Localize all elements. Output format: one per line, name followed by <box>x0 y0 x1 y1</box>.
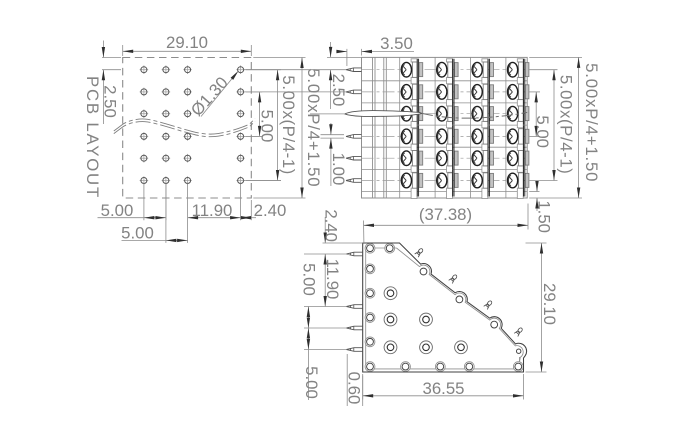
svg-text:1.00: 1.00 <box>329 153 348 186</box>
svg-text:2.50: 2.50 <box>100 85 119 118</box>
svg-text:0.60: 0.60 <box>345 372 364 405</box>
svg-text:5.00x(P/4-1): 5.00x(P/4-1) <box>279 75 298 175</box>
svg-text:5.00xP/4+1.50: 5.00xP/4+1.50 <box>304 68 323 187</box>
svg-text:PCB LAYOUT: PCB LAYOUT <box>83 76 102 199</box>
svg-text:5.00: 5.00 <box>257 110 276 143</box>
svg-text:(37.38): (37.38) <box>419 205 472 224</box>
svg-text:5.00: 5.00 <box>300 263 319 296</box>
svg-text:36.55: 36.55 <box>423 379 465 398</box>
svg-text:5.00: 5.00 <box>101 201 134 220</box>
svg-text:5.00x(P/4-1): 5.00x(P/4-1) <box>556 75 575 175</box>
svg-text:29.10: 29.10 <box>166 33 208 52</box>
svg-text:2.40: 2.40 <box>321 209 340 242</box>
svg-text:11.90: 11.90 <box>323 259 342 300</box>
svg-text:2.40: 2.40 <box>254 201 287 220</box>
svg-text:5.00: 5.00 <box>302 366 321 399</box>
svg-text:11.90: 11.90 <box>192 201 233 220</box>
svg-text:1.50: 1.50 <box>535 200 554 233</box>
svg-text:5.00xP/4+1.50: 5.00xP/4+1.50 <box>582 63 601 182</box>
svg-text:29.10: 29.10 <box>540 283 559 325</box>
svg-text:Ø1.30: Ø1.30 <box>187 73 232 120</box>
svg-text:2.50: 2.50 <box>329 74 348 107</box>
svg-text:3.50: 3.50 <box>380 34 413 53</box>
svg-text:5.00: 5.00 <box>121 224 154 243</box>
svg-text:5.00: 5.00 <box>533 115 552 148</box>
